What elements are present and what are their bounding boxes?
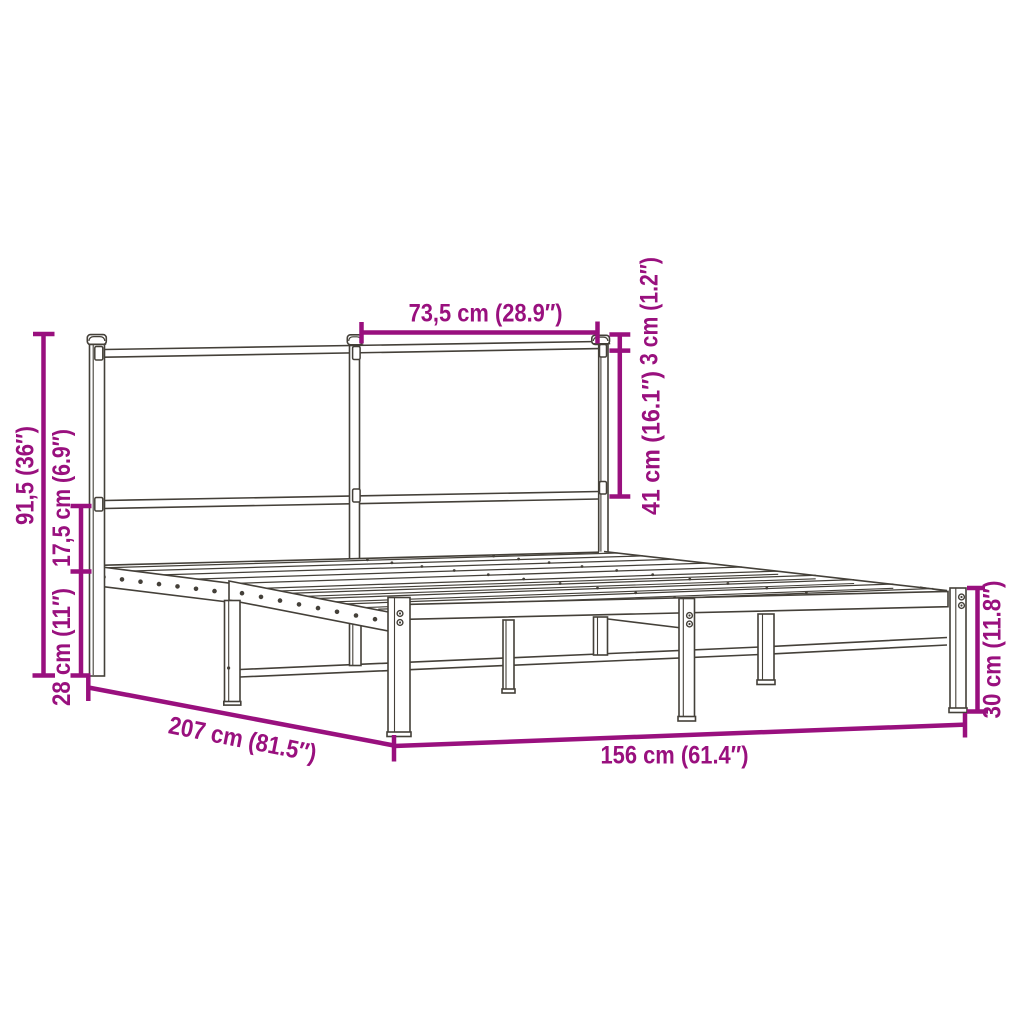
svg-text:30 cm (11.8″): 30 cm (11.8″) — [979, 581, 1007, 719]
svg-text:41 cm (16.1″): 41 cm (16.1″) — [638, 371, 666, 515]
svg-text:73,5 cm (28.9″): 73,5 cm (28.9″) — [409, 300, 563, 328]
svg-text:91,5 (36″): 91,5 (36″) — [12, 426, 40, 525]
svg-text:156 cm (61.4″): 156 cm (61.4″) — [601, 742, 749, 770]
svg-text:3 cm (1.2″): 3 cm (1.2″) — [636, 257, 664, 365]
svg-text:17,5 cm (6.9″): 17,5 cm (6.9″) — [48, 429, 76, 567]
svg-text:28 cm (11″): 28 cm (11″) — [48, 588, 76, 706]
